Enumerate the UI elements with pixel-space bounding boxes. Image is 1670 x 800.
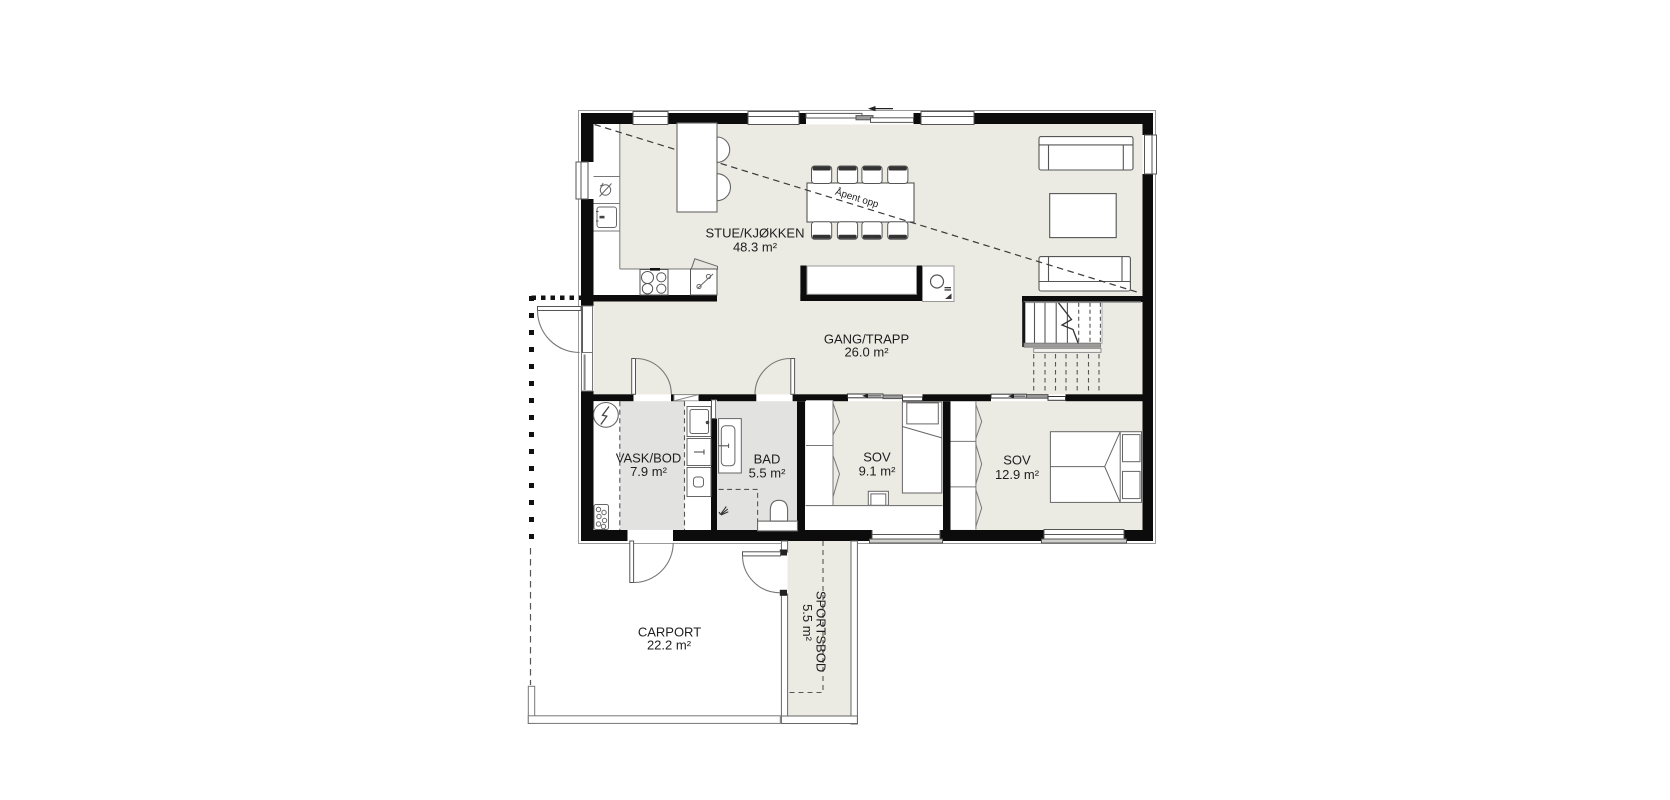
svg-text:26.0 m²: 26.0 m²: [844, 345, 889, 360]
svg-text:STUE/KJØKKEN: STUE/KJØKKEN: [706, 226, 805, 241]
svg-text:SOV: SOV: [863, 450, 891, 465]
svg-text:12.9 m²: 12.9 m²: [995, 467, 1040, 482]
svg-text:22.2 m²: 22.2 m²: [647, 638, 692, 653]
svg-text:5.5 m²: 5.5 m²: [749, 466, 787, 481]
svg-text:BAD: BAD: [754, 452, 781, 467]
svg-text:48.3 m²: 48.3 m²: [733, 240, 778, 255]
svg-text:SOV: SOV: [1003, 453, 1031, 468]
svg-text:5.5 m²: 5.5 m²: [800, 604, 815, 642]
svg-text:7.9 m²: 7.9 m²: [630, 464, 668, 479]
svg-text:9.1 m²: 9.1 m²: [859, 463, 897, 478]
